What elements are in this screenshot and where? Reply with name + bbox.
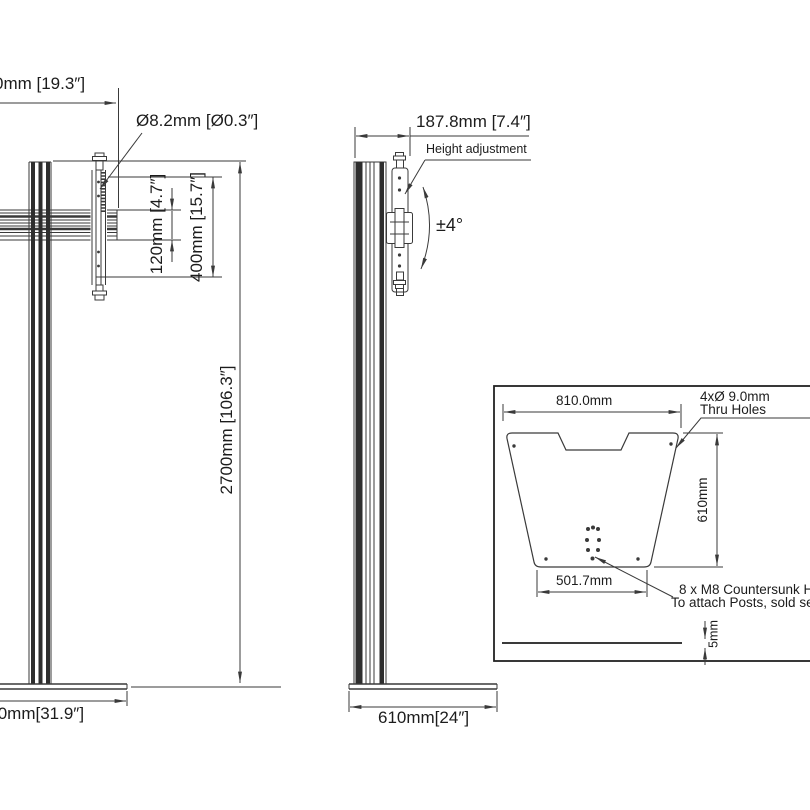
inset-detail bbox=[494, 386, 810, 665]
inset-m8-hole-cluster bbox=[585, 526, 601, 561]
side-post bbox=[354, 162, 386, 684]
inset-plate-depth-dim-label: 610mm bbox=[696, 477, 710, 522]
drawing-linework bbox=[0, 0, 810, 810]
front-dimensions bbox=[0, 88, 246, 706]
front-hole-dia-label: Ø8.2mm [Ø0.3″] bbox=[136, 112, 258, 130]
technical-drawing-canvas: 0mm [19.3″] Ø8.2mm [Ø0.3″] 120mm [4.7″] … bbox=[0, 0, 810, 810]
side-depth-dim-label: 187.8mm [7.4″] bbox=[416, 113, 531, 131]
side-base-depth-dim-label: 610mm[24″] bbox=[378, 709, 469, 727]
front-base-plate bbox=[0, 684, 127, 689]
inset-plate-width-dim-label: 810.0mm bbox=[556, 394, 612, 408]
tilt-arc bbox=[421, 187, 430, 269]
inset-thru-holes-label-2: Thru Holes bbox=[700, 403, 766, 417]
inset-corner-holes bbox=[512, 442, 672, 560]
front-base-width-dim-label: .0mm[31.9″] bbox=[0, 705, 84, 723]
front-post bbox=[29, 162, 51, 684]
front-mount-bracket bbox=[91, 153, 108, 300]
front-400mm-dim-label: 400mm [15.7″] bbox=[188, 172, 206, 282]
inset-thickness-dim-label: 5mm bbox=[707, 620, 720, 648]
front-height-dim-label: 2700mm [106.3″] bbox=[218, 366, 236, 495]
front-120mm-dim-label: 120mm [4.7″] bbox=[148, 174, 166, 275]
tilt-angle-label: ±4° bbox=[436, 216, 463, 235]
side-base-plate bbox=[349, 684, 497, 689]
inset-border bbox=[494, 386, 810, 661]
inset-hole-span-dim-label: 501.7mm bbox=[556, 574, 612, 588]
height-adjustment-label: Height adjustment bbox=[426, 143, 527, 156]
front-view bbox=[0, 88, 281, 706]
inset-plate-outline bbox=[507, 433, 678, 567]
inset-countersunk-label-2: To attach Posts, sold separately bbox=[671, 596, 810, 610]
side-mount-bracket bbox=[387, 153, 413, 296]
front-top-width-dim-label: 0mm [19.3″] bbox=[0, 75, 85, 93]
